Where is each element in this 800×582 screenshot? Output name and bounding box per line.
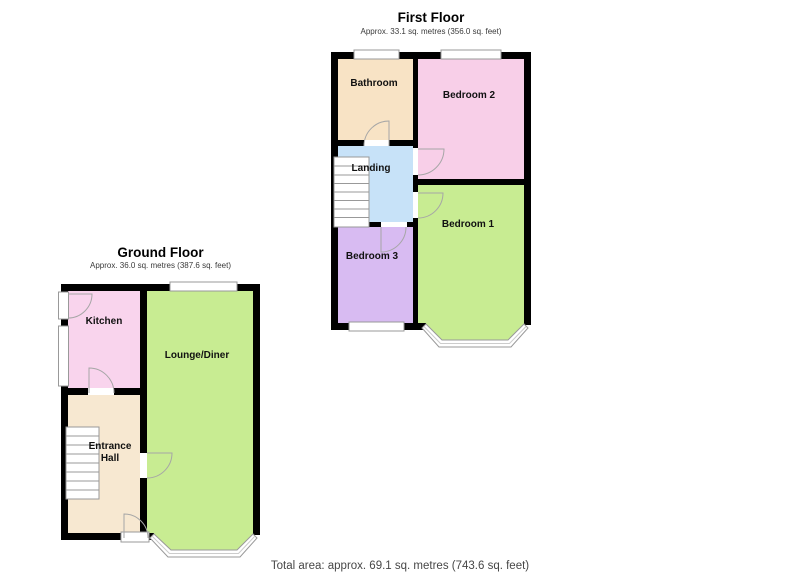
window <box>170 282 237 291</box>
door-gap <box>140 453 147 478</box>
room-bedroom2 <box>418 59 524 179</box>
wall-segment <box>61 388 88 395</box>
front-door-frame <box>121 532 149 542</box>
room-label-bedroom1: Bedroom 1 <box>428 219 508 231</box>
room-label-landing: Landing <box>331 163 411 175</box>
room-label-kitchen: Kitchen <box>64 316 144 328</box>
door-gap <box>88 388 114 395</box>
door-gap <box>381 222 407 227</box>
ground-floor-subtitle: Approx. 36.0 sq. metres (387.6 sq. feet) <box>61 261 260 270</box>
door-gap <box>413 192 418 218</box>
room-lounge-diner <box>147 291 253 533</box>
wall-segment <box>413 59 418 148</box>
wall-segment <box>413 175 418 192</box>
door-gap <box>413 148 418 175</box>
wall-segment <box>413 218 418 323</box>
wall-segment <box>114 388 147 395</box>
room-label-lounge-diner: Lounge/Diner <box>157 350 237 362</box>
room-label-entrance-hall: Entrance Hall <box>82 441 138 465</box>
first-floor-subtitle: Approx. 33.1 sq. metres (356.0 sq. feet) <box>331 27 531 36</box>
window <box>59 326 69 386</box>
gf-rooms <box>68 291 253 550</box>
window <box>349 322 404 331</box>
room-bathroom <box>338 59 413 140</box>
room-bedroom1 <box>418 185 524 323</box>
wall-segment <box>524 52 531 325</box>
wall-segment <box>389 140 413 146</box>
room-lounge-bay <box>154 531 253 550</box>
wall-segment <box>61 533 122 540</box>
first-floor-title: First Floor <box>331 10 531 25</box>
wall-segment <box>253 284 260 535</box>
room-label-bedroom2: Bedroom 2 <box>429 90 509 102</box>
window <box>354 50 399 59</box>
door-gap <box>364 140 389 146</box>
ground-floor-title: Ground Floor <box>61 245 260 260</box>
wall-segment <box>407 222 413 227</box>
wall-segment <box>418 179 524 185</box>
room-label-bathroom: Bathroom <box>334 78 414 90</box>
window <box>441 50 501 59</box>
door-frame <box>59 292 69 319</box>
wall-segment <box>338 140 364 146</box>
total-area-text: Total area: approx. 69.1 sq. metres (743… <box>200 560 600 572</box>
room-label-bedroom3: Bedroom 3 <box>332 251 412 263</box>
floorplan-page: First Floor Approx. 33.1 sq. metres (356… <box>0 0 800 582</box>
